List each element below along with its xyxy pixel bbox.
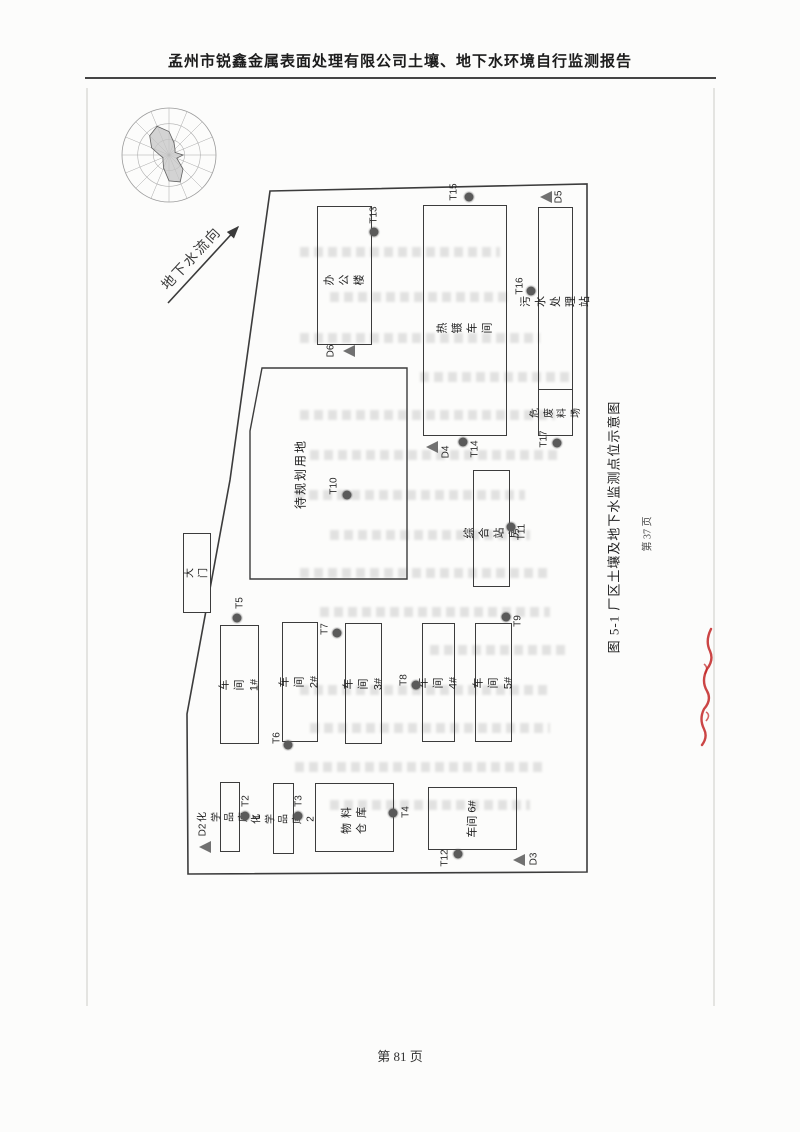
soil-point-t11 <box>507 523 516 532</box>
soil-point-t7 <box>333 629 342 638</box>
figure-caption: 图 5-1 厂区土壤及地下水监测点位示意图 <box>604 401 623 654</box>
workshop-6-label: 车间 6# <box>465 800 480 837</box>
building-hazardous-waste-yard: 危废 料场 <box>538 389 573 436</box>
soil-point-t15-label: T15 <box>449 183 460 200</box>
workshop-5-label: 车间 5# <box>471 674 516 692</box>
soil-point-t16-label: T16 <box>515 277 526 294</box>
gate-label: 大门 <box>184 567 211 580</box>
building-workshop-6: 车间 6# <box>428 787 517 850</box>
soil-point-t14-label: T14 <box>470 440 481 457</box>
soil-point-t10 <box>343 491 352 500</box>
soil-point-t12-label: T12 <box>440 849 451 866</box>
soil-point-t9 <box>502 613 511 622</box>
building-chemical-storage-1: 化学品库 1 <box>220 782 240 852</box>
building-workshop-5: 车间 5# <box>475 623 512 742</box>
soil-point-t6-label: T6 <box>272 732 283 744</box>
figure-vector-layer <box>0 0 800 1132</box>
soil-point-t4 <box>389 809 398 818</box>
soil-point-t12 <box>454 850 463 859</box>
building-hazwaste-label: 危废 料场 <box>529 404 583 421</box>
soil-point-t5 <box>233 614 242 623</box>
material-warehouse-label: 物料 仓库 <box>340 802 370 834</box>
well-point-d4-label: D4 <box>441 446 452 459</box>
soil-point-t11-label: T11 <box>517 524 528 541</box>
well-point-d3-label: D3 <box>529 853 540 866</box>
well-point-d4 <box>426 441 438 453</box>
workshop-3-label: 车间 3# <box>341 675 386 693</box>
building-workshop-2: 车间 2# <box>282 622 318 742</box>
soil-point-t8 <box>412 681 421 690</box>
building-chemical-storage-2: 化学品库 2 <box>273 783 294 854</box>
soil-point-t16 <box>527 287 536 296</box>
workshop-4-label: 车间 4# <box>416 675 461 691</box>
chemical-storage-2-label: 化学品库 2 <box>250 814 318 824</box>
well-point-d2-label: D2 <box>198 824 209 837</box>
wind-rose-chart <box>122 108 216 202</box>
workshop-1-label: 车间 1# <box>217 675 262 694</box>
well-point-d6 <box>343 345 355 357</box>
well-point-d3 <box>513 854 525 866</box>
gate: 大门 <box>183 533 211 613</box>
building-material-warehouse: 物料 仓库 <box>315 783 394 852</box>
building-hot-plating-label: 热 镀 车 间 <box>435 300 494 341</box>
soil-point-t14 <box>459 438 468 447</box>
soil-point-t7-label: T7 <box>320 623 331 635</box>
soil-point-t13 <box>370 228 379 237</box>
soil-point-t2-label: T2 <box>241 795 252 807</box>
workshop-2-label: 车间 2# <box>278 674 323 691</box>
soil-point-t13-label: T13 <box>369 206 380 223</box>
well-point-d2 <box>199 841 211 853</box>
area-land-to-be-planned <box>250 368 407 579</box>
soil-point-t9-label: T9 <box>513 615 524 627</box>
soil-point-t15 <box>465 193 474 202</box>
soil-point-t3-label: T3 <box>294 795 305 807</box>
building-sewage-treatment-station: 污水处理站 <box>538 207 573 390</box>
scanned-report-page: 孟州市锐鑫金属表面处理有限公司土壤、地下水环境自行监测报告 <box>0 0 800 1132</box>
building-workshop-3: 车间 3# <box>345 623 382 744</box>
building-hot-plating-workshop: 热 镀 车 间 <box>423 205 507 436</box>
building-comprehensive-station: 综 合 站 房 <box>473 470 510 587</box>
building-workshop-1: 车间 1# <box>220 625 259 744</box>
red-annotation <box>702 629 712 745</box>
wind-rose-petals <box>150 126 183 182</box>
soil-point-t10-label: T10 <box>329 477 340 494</box>
building-workshop-4: 车间 4# <box>422 623 455 742</box>
building-office-label: 办 公 楼 <box>322 262 367 289</box>
soil-point-t17 <box>553 439 562 448</box>
soil-point-t3 <box>294 812 303 821</box>
well-point-d5 <box>540 191 552 203</box>
soil-point-t17-label: T17 <box>539 430 550 447</box>
soil-point-t8-label: T8 <box>399 674 410 686</box>
soil-point-t2 <box>241 812 250 821</box>
soil-point-t5-label: T5 <box>235 597 246 609</box>
well-point-d5-label: D5 <box>554 191 565 204</box>
inner-page-number: 第 37 页 <box>639 517 654 552</box>
building-office: 办 公 楼 <box>317 206 372 345</box>
soil-point-t4-label: T4 <box>401 806 412 818</box>
soil-point-t6 <box>284 741 293 750</box>
area-land-to-be-planned-label: 待规划用地 <box>292 439 309 509</box>
well-point-d6-label: D6 <box>326 345 337 358</box>
